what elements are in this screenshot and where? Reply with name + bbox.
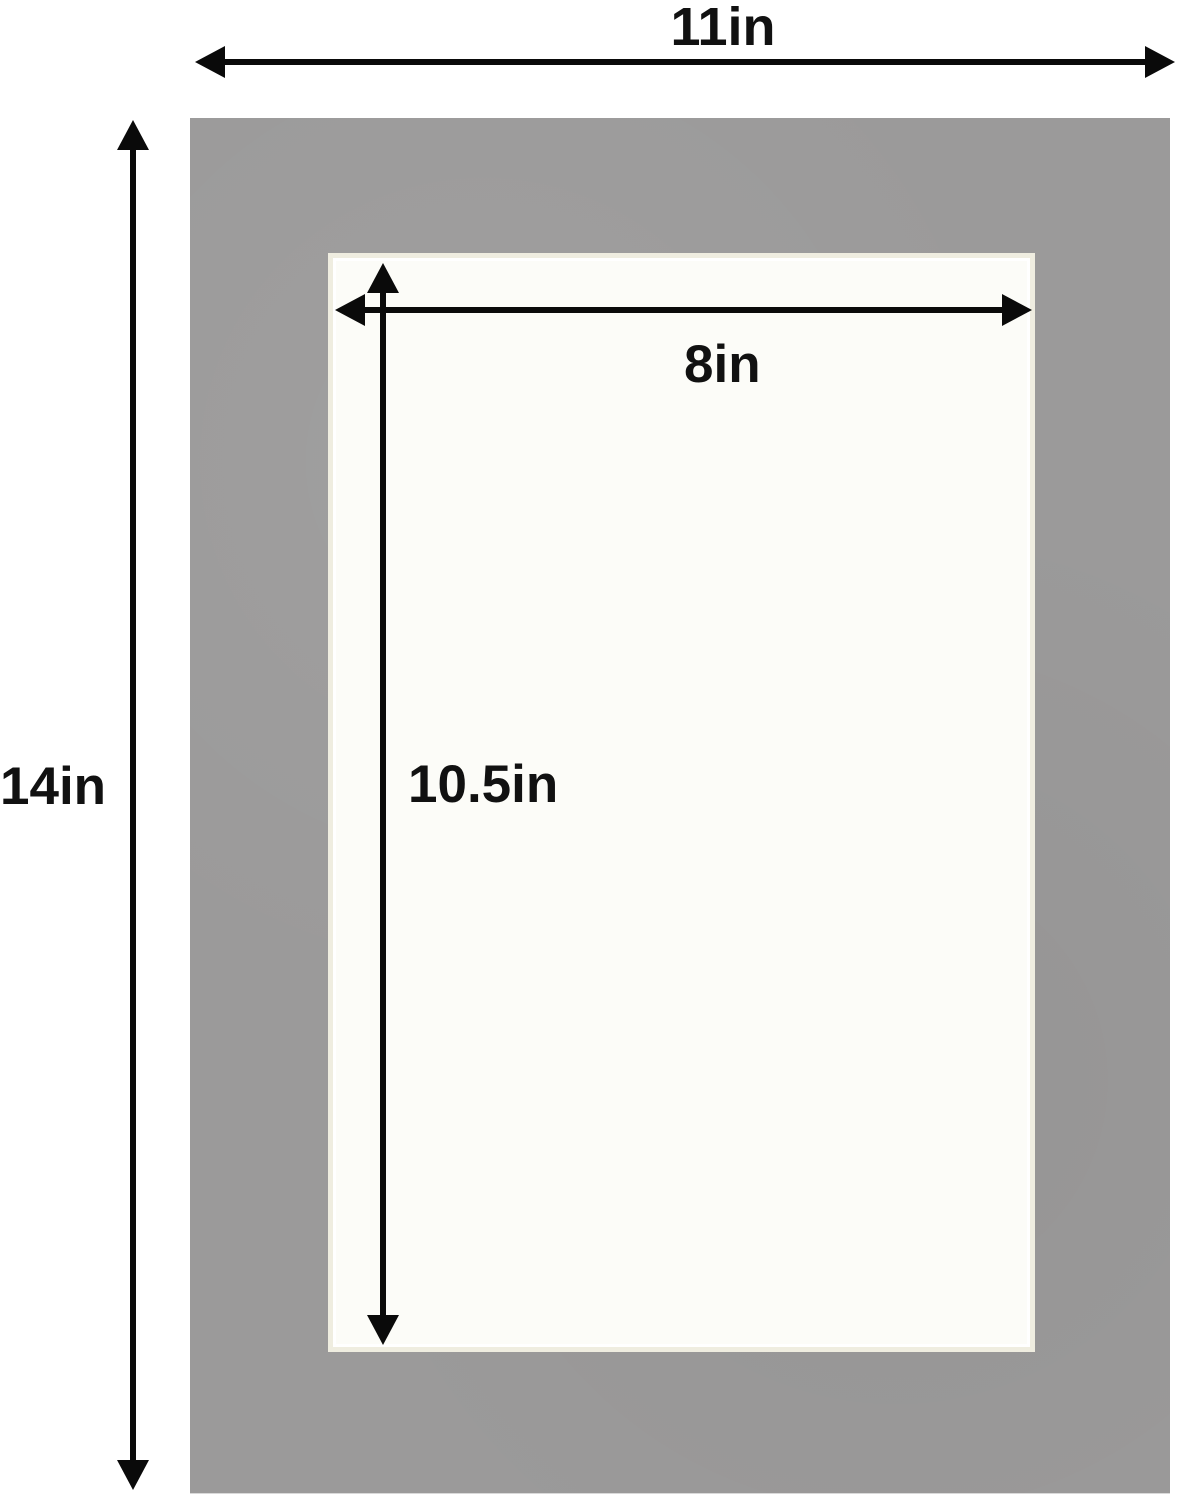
opening-height-label: 10.5in	[408, 758, 558, 811]
outer-width-label: 11in	[670, 0, 775, 54]
arrowhead-down-icon	[367, 1315, 399, 1345]
opening-height-arrow	[367, 263, 399, 1345]
arrow-line	[130, 144, 136, 1466]
opening-width-label: 8in	[684, 338, 761, 391]
arrow-line	[359, 307, 1008, 313]
arrowhead-right-icon	[1002, 294, 1032, 326]
opening-width-arrow	[335, 294, 1032, 326]
arrow-line	[380, 287, 386, 1321]
mat-dimensions-diagram: 11in 14in 8in 10.5in	[0, 0, 1185, 1500]
arrow-line	[219, 59, 1151, 65]
outer-height-arrow	[117, 120, 149, 1490]
arrowhead-down-icon	[117, 1460, 149, 1490]
outer-height-label: 14in	[0, 760, 106, 813]
arrowhead-right-icon	[1145, 46, 1175, 78]
